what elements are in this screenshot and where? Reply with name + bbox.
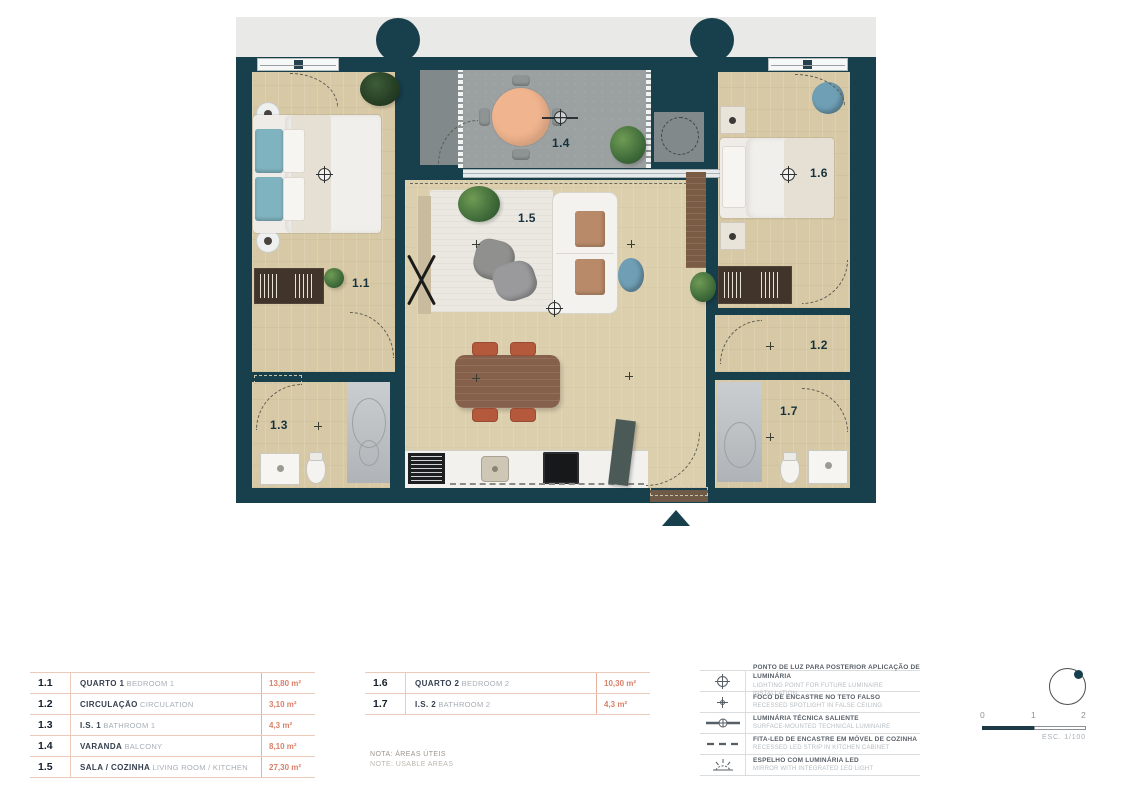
symbol-row: FITA-LED DE ENCASTRE EM MÓVEL DE COZINHA…: [700, 734, 920, 755]
room-name-en: BATHROOM 2: [438, 700, 490, 709]
room-name-pt: I.S. 1: [80, 721, 101, 730]
exterior-column-left: [376, 18, 420, 62]
spotlight-symbol: [314, 422, 322, 430]
tall-cabinet: [686, 172, 706, 268]
room-name-en: BALCONY: [124, 742, 162, 751]
floor-plan-sheet: 1.1 1.2 1.3 1.4 1.5 1.6 1.7 1.1 QUARTO 1…: [0, 0, 1128, 789]
symbol-label-en: RECESSED LED STRIP IN KITCHEN CABINET: [753, 744, 920, 752]
north-dot: [1074, 670, 1083, 679]
symbol-label-pt: FOCO DE ENCASTRE NO TETO FALSO: [753, 694, 920, 703]
spotlight-symbol: [627, 240, 635, 248]
exterior-column-right: [690, 18, 734, 62]
plant: [690, 272, 716, 302]
lighting-point-symbol: [782, 168, 795, 181]
legend-row: 1.3 I.S. 1 BATHROOM 1 4,3 m²: [30, 715, 315, 736]
legend-row: 1.2 CIRCULAÇÃO CIRCULATION 3,10 m²: [30, 694, 315, 715]
symbol-row: PONTO DE LUZ PARA POSTERIOR APLICAÇÃO DE…: [700, 670, 920, 692]
cooktop: [543, 452, 579, 484]
room-area: 10,30 m²: [596, 673, 650, 693]
dining-chair: [510, 408, 536, 422]
scale-tick-2: 2: [1081, 710, 1086, 720]
note-en: NOTE: USABLE AREAS: [370, 761, 453, 768]
room-name-pt: CIRCULAÇÃO: [80, 700, 138, 709]
symbol-label-pt: LUMINÁRIA TÉCNICA SALIENTE: [753, 715, 920, 724]
window-blind-box: [803, 60, 812, 69]
plant: [324, 268, 344, 288]
room-area: 4,3 m²: [261, 715, 315, 735]
recessed-spotlight-icon: [700, 692, 745, 712]
lighting-point-symbol: [554, 111, 567, 124]
bedroom1-wardrobe: [254, 268, 324, 304]
room-number: 1.6: [365, 677, 405, 689]
room-area: 8,10 m²: [261, 736, 315, 756]
room-label-bathroom2: 1.7: [780, 404, 798, 418]
symbol-label-pt: PONTO DE LUZ PARA POSTERIOR APLICAÇÃO DE…: [753, 664, 920, 682]
bedroom1-window: [257, 58, 339, 71]
room-name-en: BEDROOM 1: [127, 679, 175, 688]
room-area: 4,3 m²: [596, 694, 650, 714]
legend-row: 1.5 SALA / COZINHA LIVING ROOM / KITCHEN…: [30, 757, 315, 778]
scale-bar-filled: [982, 726, 1034, 730]
entrance-arrow: [662, 510, 690, 526]
room-label-living: 1.5: [518, 211, 536, 225]
room-name-pt: QUARTO 2: [415, 679, 459, 688]
room-area: 13,80 m²: [261, 673, 315, 693]
spotlight-symbol: [472, 374, 480, 382]
legend-row: 1.6 QUARTO 2 BEDROOM 2 10,30 m²: [365, 672, 650, 694]
dining-chair: [472, 408, 498, 422]
room-label-circulation: 1.2: [810, 338, 828, 352]
bed-pillow: [255, 129, 283, 173]
plant: [360, 72, 400, 106]
exterior-slab-band: [236, 17, 876, 58]
ceiling-dashed-line: [410, 183, 702, 184]
bathroom2-toilet: [780, 456, 800, 484]
symbol-row: LUMINÁRIA TÉCNICA SALIENTESURFACE-MOUNTE…: [700, 713, 920, 734]
bathroom2-sink: [808, 450, 848, 484]
room-legend-right: 1.6 QUARTO 2 BEDROOM 2 10,30 m² 1.7 I.S.…: [365, 672, 650, 715]
bed-pillow: [255, 177, 283, 221]
scale-bar-outline: [1034, 726, 1086, 730]
plant: [610, 126, 646, 164]
note-pt: NOTA: ÁREAS ÚTEIS: [370, 751, 453, 758]
room-number: 1.7: [365, 698, 405, 710]
window-blind-box: [294, 60, 303, 69]
bed-pillow: [722, 146, 746, 208]
symbol-label-en: SURFACE-MOUNTED TECHNICAL LUMINAIRE: [753, 723, 920, 731]
bathroom2-shower: [717, 382, 762, 482]
plant: [458, 186, 500, 222]
room-name-en: CIRCULATION: [140, 700, 194, 709]
surface-luminaire-icon: [700, 713, 745, 733]
bedroom2-nightstand-bottom: [720, 222, 746, 250]
bathroom1-toilet: [306, 456, 326, 484]
bed-pillow: [283, 129, 305, 173]
balcony-chair: [512, 149, 530, 160]
symbol-row: FOCO DE ENCASTRE NO TETO FALSORECESSED S…: [700, 692, 920, 713]
bedroom2-wardrobe: [718, 266, 792, 304]
dining-table: [455, 355, 560, 408]
room-name-pt: QUARTO 1: [80, 679, 124, 688]
legend-row: 1.7 I.S. 2 BATHROOM 2 4,3 m²: [365, 694, 650, 715]
bathroom1-shower: [347, 382, 390, 483]
sofa-cushion: [575, 211, 605, 247]
areas-note: NOTA: ÁREAS ÚTEIS NOTE: USABLE AREAS: [370, 751, 453, 768]
spotlight-symbol: [625, 372, 633, 380]
balcony-railing-right: [646, 70, 651, 168]
led-strip-icon: [700, 734, 745, 754]
room-number: 1.2: [30, 698, 70, 710]
shower-tray: [724, 422, 756, 468]
bathroom1-sink: [260, 453, 300, 485]
scale-tick-0: 0: [980, 710, 985, 720]
room-name-pt: I.S. 2: [415, 700, 436, 709]
room-name-en: BATHROOM 1: [103, 721, 155, 730]
balcony-chair: [512, 75, 530, 86]
symbol-label-en: RECESSED SPOTLIGHT IN FALSE CEILING: [753, 702, 920, 710]
sofa-seam: [556, 253, 614, 254]
room-area: 27,30 m²: [261, 757, 315, 777]
bedroom2-nightstand-top: [720, 106, 746, 134]
room-number: 1.1: [30, 677, 70, 689]
shower-drain: [359, 440, 379, 466]
spotlight-symbol: [766, 342, 774, 350]
room-label-bathroom1: 1.3: [270, 418, 288, 432]
dining-chair: [510, 342, 536, 356]
room-number: 1.3: [30, 719, 70, 731]
room-legend-left: 1.1 QUARTO 1 BEDROOM 1 13,80 m² 1.2 CIRC…: [30, 672, 315, 778]
room-label-bedroom2: 1.6: [810, 166, 828, 180]
symbol-label-pt: FITA-LED DE ENCASTRE EM MÓVEL DE COZINHA: [753, 736, 920, 745]
room-number: 1.4: [30, 740, 70, 752]
symbol-label-en: MIRROR WITH INTEGRATED LED LIGHT: [753, 765, 920, 773]
bathroom1-threshold: [254, 375, 302, 384]
room-area: 3,10 m²: [261, 694, 315, 714]
spotlight-symbol: [766, 433, 774, 441]
room-name-en: BEDROOM 2: [462, 679, 510, 688]
symbols-legend: PONTO DE LUZ PARA POSTERIOR APLICAÇÃO DE…: [700, 670, 920, 776]
bed-pillow: [283, 177, 305, 221]
room-name-pt: VARANDA: [80, 742, 122, 751]
spotlight-symbol: [472, 240, 480, 248]
bedroom2-window: [768, 58, 848, 71]
side-chair: [618, 258, 644, 292]
room-name-pt: SALA / COZINHA: [80, 763, 150, 772]
kitchen-sink: [481, 456, 509, 482]
mirror-led-icon: [700, 755, 745, 775]
lighting-point-icon: [700, 671, 745, 691]
entrance-threshold: [650, 487, 708, 496]
lighting-point-symbol: [548, 302, 561, 315]
lighting-point-symbol: [318, 168, 331, 181]
dining-chair: [472, 342, 498, 356]
legend-row: 1.4 VARANDA BALCONY 8,10 m²: [30, 736, 315, 757]
room-name-en: LIVING ROOM / KITCHEN: [152, 763, 247, 772]
legend-row: 1.1 QUARTO 1 BEDROOM 1 13,80 m²: [30, 672, 315, 694]
sofa-cushion: [575, 259, 605, 295]
symbol-row: ESPELHO COM LUMINÁRIA LEDMIRROR WITH INT…: [700, 755, 920, 776]
room-label-bedroom1: 1.1: [352, 276, 370, 290]
scale-label: ESC. 1/100: [1042, 734, 1086, 741]
room-number: 1.5: [30, 761, 70, 773]
balcony-chair: [479, 108, 490, 126]
dish-rack: [408, 453, 445, 484]
sofa: [552, 192, 618, 314]
symbol-label-pt: ESPELHO COM LUMINÁRIA LED: [753, 757, 920, 766]
ac-unit-dashed-circle: [661, 117, 699, 155]
room-label-balcony: 1.4: [552, 136, 570, 150]
scale-tick-1: 1: [1031, 710, 1036, 720]
